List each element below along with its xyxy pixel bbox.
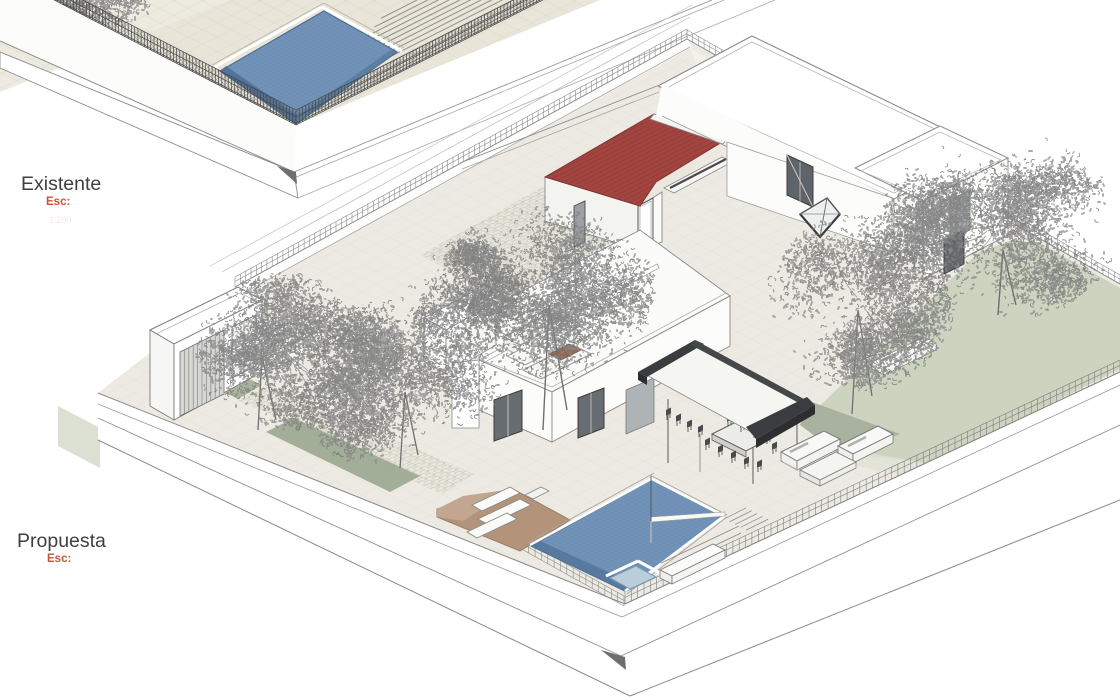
svg-text:Esc:: Esc:	[46, 196, 70, 208]
svg-text:1:200: 1:200	[49, 215, 72, 225]
svg-text:Esc:: Esc:	[47, 553, 71, 565]
svg-text:Existente: Existente	[21, 173, 101, 195]
svg-text:Propuesta: Propuesta	[17, 530, 106, 552]
